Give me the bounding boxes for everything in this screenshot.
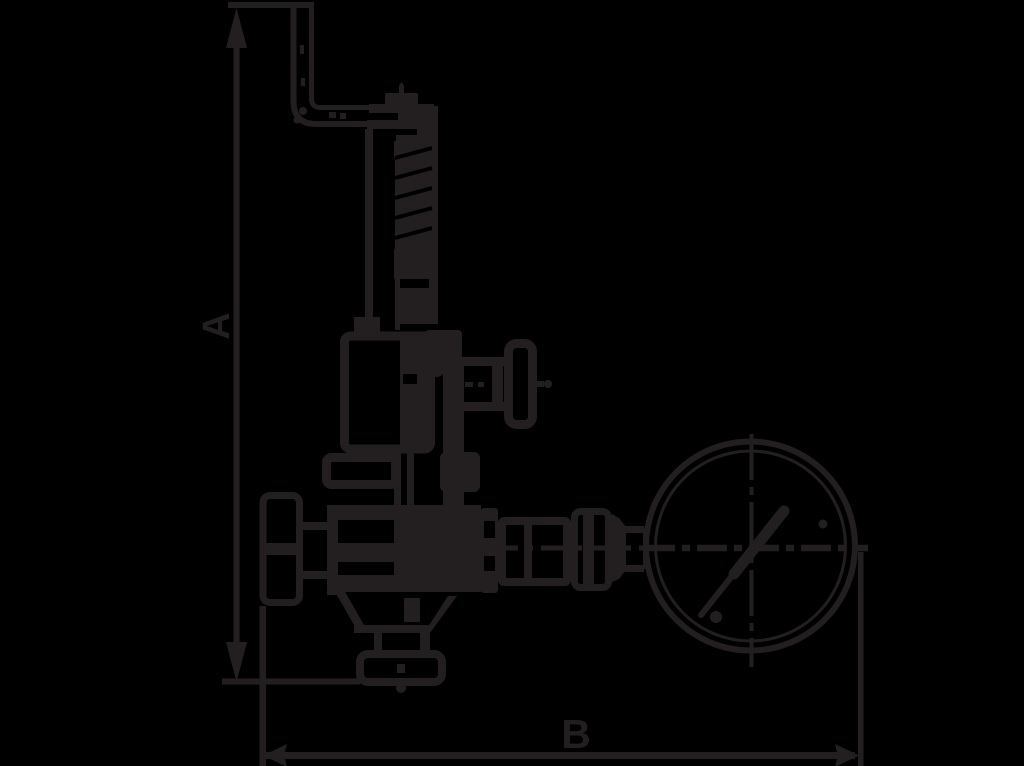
svg-text:A: A [196,312,238,339]
svg-text:B: B [561,711,591,757]
